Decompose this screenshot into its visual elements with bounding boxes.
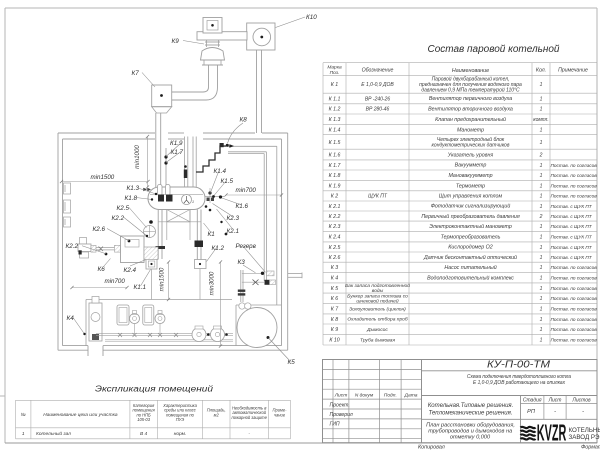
svg-text:К2.3: К2.3 <box>227 215 240 222</box>
svg-text:м2: м2 <box>214 413 220 418</box>
svg-text:К1.7: К1.7 <box>171 149 184 156</box>
svg-text:Постав. по согласов: Постав. по согласов <box>551 307 598 312</box>
svg-text:отметку 0,000: отметку 0,000 <box>450 434 491 440</box>
svg-text:min1000: min1000 <box>134 145 141 169</box>
svg-text:Постав. по согласов: Постав. по согласов <box>551 194 598 199</box>
svg-text:1: 1 <box>192 199 194 204</box>
svg-text:N докум: N докум <box>355 392 374 398</box>
svg-text:К1.1: К1.1 <box>134 284 146 291</box>
svg-text:К6: К6 <box>98 266 106 273</box>
svg-text:Формат А3: Формат А3 <box>581 444 600 450</box>
svg-text:План расстановки оборудования,: План расстановки оборудования, <box>426 422 515 428</box>
svg-text:ВР 280-46: ВР 280-46 <box>366 107 390 113</box>
svg-text:1: 1 <box>540 275 543 281</box>
svg-text:К 1.2: К 1.2 <box>329 107 341 113</box>
svg-text:Фотодатчик сигнализирующий: Фотодатчик сигнализирующий <box>431 203 511 210</box>
svg-text:Проверил: Проверил <box>330 412 353 418</box>
svg-text:Термометр: Термометр <box>456 183 485 189</box>
svg-text:Подп.: Подп. <box>384 392 397 398</box>
svg-text:К1.5: К1.5 <box>221 178 234 185</box>
svg-text:Охладитель отбора проб: Охладитель отбора проб <box>347 317 408 323</box>
svg-text:пожарной защите: пожарной защите <box>232 415 268 420</box>
svg-text:К 1.1: К 1.1 <box>329 96 341 102</box>
svg-text:К 1.6: К 1.6 <box>329 152 341 158</box>
svg-text:К 1.5: К 1.5 <box>329 140 341 146</box>
svg-text:Термопреобразователь: Термопреобразователь <box>441 235 501 241</box>
svg-text:К 1.7: К 1.7 <box>329 163 342 169</box>
svg-text:1: 1 <box>540 82 543 88</box>
svg-text:1: 1 <box>540 338 543 344</box>
svg-text:Котельная.Типовые решения.: Котельная.Типовые решения. <box>428 403 514 409</box>
svg-text:Котельный зал: Котельный зал <box>36 430 71 437</box>
svg-text:min3000: min3000 <box>209 271 216 295</box>
svg-text:К3: К3 <box>238 259 246 266</box>
svg-text:К 2: К 2 <box>331 194 338 200</box>
svg-text:Мановакуумметр: Мановакуумметр <box>448 173 492 179</box>
svg-text:1: 1 <box>540 140 543 146</box>
svg-text:№: № <box>21 412 26 417</box>
svg-text:2: 2 <box>539 214 543 220</box>
svg-text:Постав. с ЩУК ПТ: Постав. с ЩУК ПТ <box>551 224 593 229</box>
svg-text:Постав. с ЩУК ПТ: Постав. с ЩУК ПТ <box>551 245 593 250</box>
svg-text:-: - <box>582 409 584 415</box>
svg-text:Датчик бесконтактный оптически: Датчик бесконтактный оптический <box>423 254 517 261</box>
svg-text:К 2.4: К 2.4 <box>329 235 341 241</box>
svg-text:К2.2: К2.2 <box>66 243 79 250</box>
svg-text:Вакуумметр: Вакуумметр <box>455 163 487 169</box>
svg-text:К 1.3: К 1.3 <box>329 117 341 123</box>
svg-text:Е 1,0-0,9 ДОВ работающего на о: Е 1,0-0,9 ДОВ работающего на опилках <box>473 380 565 386</box>
svg-text:Проект.: Проект. <box>330 402 350 408</box>
svg-text:В 4: В 4 <box>140 431 148 437</box>
svg-text:1: 1 <box>540 317 543 323</box>
svg-text:1: 1 <box>22 431 25 437</box>
svg-text:К2.2: К2.2 <box>112 215 125 222</box>
svg-text:ЗАВОД РЭП: ЗАВОД РЭП <box>569 434 600 441</box>
svg-text:Манометр: Манометр <box>457 127 484 133</box>
svg-text:К5: К5 <box>288 359 296 366</box>
svg-text:ПУЭ: ПУЭ <box>176 417 185 422</box>
svg-text:КОТЕЛЬНЫЙ: КОТЕЛЬНЫЙ <box>569 426 600 434</box>
svg-text:К1.3: К1.3 <box>127 185 140 192</box>
svg-text:К7: К7 <box>132 70 140 77</box>
svg-text:min1500: min1500 <box>159 267 166 291</box>
svg-text:шнековой подачей: шнековой подачей <box>356 297 399 304</box>
svg-text:Обозначение: Обозначение <box>362 68 394 74</box>
svg-text:К1: К1 <box>208 231 215 238</box>
svg-text:К 3: К 3 <box>331 265 338 271</box>
svg-text:1: 1 <box>540 327 543 333</box>
svg-text:К 9: К 9 <box>331 327 338 333</box>
svg-text:КУ-П-00-ТМ: КУ-П-00-ТМ <box>487 359 550 371</box>
svg-text:Наименование цеха или участка: Наименование цеха или участка <box>43 412 118 418</box>
svg-text:К9: К9 <box>172 38 180 45</box>
svg-text:1: 1 <box>540 255 543 261</box>
svg-text:Дата: Дата <box>404 392 418 398</box>
svg-text:1: 1 <box>540 173 543 179</box>
svg-text:Щит управления котлом: Щит управления котлом <box>439 194 503 200</box>
svg-text:Постав. с ЩУК ПТ: Постав. с ЩУК ПТ <box>551 235 593 240</box>
svg-text:1: 1 <box>540 245 543 251</box>
svg-text:Состав паровой котельной: Состав паровой котельной <box>428 44 561 55</box>
svg-text:Постав. по согласов: Постав. по согласов <box>551 184 598 189</box>
svg-text:К8: К8 <box>240 117 248 124</box>
svg-text:105-03: 105-03 <box>137 417 150 422</box>
svg-text:РП: РП <box>527 409 536 415</box>
svg-text:Кол.: Кол. <box>536 68 546 74</box>
svg-text:1: 1 <box>540 184 543 190</box>
svg-text:К10: К10 <box>306 14 317 21</box>
svg-text:Золоуловитель (циклон): Золоуловитель (циклон) <box>349 306 406 312</box>
svg-text:Указатель уровня: Указатель уровня <box>448 152 494 158</box>
svg-text:К1.9: К1.9 <box>170 140 183 147</box>
svg-text:К1.6: К1.6 <box>236 203 249 210</box>
svg-text:Наименование: Наименование <box>452 68 489 74</box>
svg-text:чание: чание <box>274 413 286 418</box>
svg-text:К1.2: К1.2 <box>212 245 225 252</box>
svg-text:1: 1 <box>540 296 543 302</box>
svg-text:норм.: норм. <box>174 432 187 437</box>
svg-text:Постав. с ЩУК ПТ: Постав. с ЩУК ПТ <box>551 255 593 260</box>
svg-text:К 4: К 4 <box>331 275 338 281</box>
svg-text:Вентилятор вторичного воздуха: Вентилятор вторичного воздуха <box>428 107 513 113</box>
svg-text:Тепломеханические решения.: Тепломеханические решения. <box>429 411 513 417</box>
svg-text:Первичный преобразователь давл: Первичный преобразователь давления <box>421 213 520 220</box>
svg-text:1: 1 <box>540 265 543 271</box>
svg-text:Насос питательный: Насос питательный <box>444 264 496 271</box>
svg-text:Постав. по согласов: Постав. по согласов <box>551 296 598 301</box>
svg-text:Постав. с ЩУК ПТ: Постав. с ЩУК ПТ <box>551 204 593 209</box>
svg-text:Труба дымовая: Труба дымовая <box>360 337 395 343</box>
svg-text:ВР -240-26: ВР -240-26 <box>365 96 391 102</box>
svg-text:Постав. по согласов: Постав. по согласов <box>551 265 598 270</box>
svg-text:К 2.3: К 2.3 <box>329 224 341 230</box>
svg-text:1: 1 <box>540 127 543 133</box>
svg-text:Кислородомер О2: Кислородомер О2 <box>448 245 493 251</box>
svg-text:Дымосос: Дымосос <box>366 327 388 333</box>
svg-text:давлением 0,9 МПа температурой: давлением 0,9 МПа температурой 110°С <box>421 87 520 94</box>
svg-text:Постав. по согласов: Постав. по согласов <box>551 317 598 322</box>
svg-text:К 7: К 7 <box>331 307 339 313</box>
svg-text:Е 1,0-0,9 ДОВ: Е 1,0-0,9 ДОВ <box>361 82 394 88</box>
svg-text:Постав. по согласов: Постав. по согласов <box>551 275 598 280</box>
svg-text:Постав. по согласов: Постав. по согласов <box>551 338 598 343</box>
svg-text:Постав. по согласов: Постав. по согласов <box>551 286 598 291</box>
svg-text:min700: min700 <box>105 278 126 285</box>
svg-text:К 6: К 6 <box>331 296 338 302</box>
svg-text:компл.: компл. <box>533 117 549 123</box>
svg-text:Поз.: Поз. <box>330 70 340 76</box>
svg-text:1: 1 <box>540 307 543 313</box>
svg-text:1: 1 <box>540 96 543 102</box>
svg-text:К 2.1: К 2.1 <box>329 204 341 210</box>
svg-text:К 8: К 8 <box>331 317 338 323</box>
svg-text:Постав. с ЩУК ПТ: Постав. с ЩУК ПТ <box>551 214 593 219</box>
svg-text:ЩУК ПТ: ЩУК ПТ <box>368 194 388 200</box>
svg-text:Копировал: Копировал <box>418 444 445 450</box>
svg-text:Экспликация помещений: Экспликация помещений <box>95 383 213 393</box>
svg-text:К2.4: К2.4 <box>124 267 137 274</box>
svg-text:Лист: Лист <box>334 392 348 398</box>
svg-text:К4: К4 <box>67 315 75 322</box>
svg-text:KVZR: KVZR <box>537 420 567 446</box>
svg-text:Примечание: Примечание <box>558 68 588 74</box>
svg-text:1: 1 <box>540 204 543 210</box>
svg-text:Постав. по согласов: Постав. по согласов <box>551 327 598 332</box>
svg-text:К 2.5: К 2.5 <box>329 245 341 251</box>
svg-text:К 1.8: К 1.8 <box>329 173 341 179</box>
svg-text:К 10: К 10 <box>329 338 339 344</box>
svg-text:Стадия: Стадия <box>523 398 542 404</box>
svg-text:Листов: Листов <box>571 398 591 404</box>
svg-text:Марка: Марка <box>327 65 342 71</box>
svg-text:Клапан предохранительный: Клапан предохранительный <box>435 116 506 123</box>
svg-text:К2.5: К2.5 <box>117 205 130 212</box>
svg-text:Резерв: Резерв <box>236 243 257 250</box>
svg-text:К 2.6: К 2.6 <box>329 255 341 261</box>
svg-text:2: 2 <box>539 152 543 158</box>
svg-text:Постав. по согласов: Постав. по согласов <box>551 173 598 178</box>
svg-text:min700: min700 <box>236 187 257 194</box>
svg-text:Водоподготовительный комплекс: Водоподготовительный комплекс <box>427 274 514 281</box>
svg-text:К 1.4: К 1.4 <box>329 127 341 133</box>
svg-text:К 1.9: К 1.9 <box>329 184 341 190</box>
svg-text:-: - <box>248 432 250 437</box>
svg-text:К2.6: К2.6 <box>93 226 106 233</box>
svg-text:Электроконтактный манометр: Электроконтактный манометр <box>429 223 512 230</box>
svg-text:Постав. по согласов: Постав. по согласов <box>551 163 598 168</box>
svg-text:1: 1 <box>540 286 543 292</box>
svg-text:К 1: К 1 <box>331 82 338 88</box>
svg-text:воды: воды <box>372 288 384 294</box>
svg-text:1: 1 <box>540 235 543 241</box>
svg-text:-: - <box>554 409 556 415</box>
svg-text:К 5: К 5 <box>331 286 338 292</box>
svg-text:К1.8: К1.8 <box>125 195 138 202</box>
svg-text:К1.4: К1.4 <box>214 168 227 175</box>
svg-text:min1500: min1500 <box>91 174 115 181</box>
svg-text:1: 1 <box>540 107 543 113</box>
svg-text:1: 1 <box>540 224 543 230</box>
svg-text:Вентилятор первичного воздуха: Вентилятор первичного воздуха <box>429 96 512 102</box>
svg-text:кондуктометрических датчиков: кондуктометрических датчиков <box>432 142 510 148</box>
svg-text:1: 1 <box>540 163 543 169</box>
svg-text:ГИП: ГИП <box>330 421 340 427</box>
svg-text:К 2.2: К 2.2 <box>329 214 341 220</box>
svg-text:Лист: Лист <box>548 398 562 404</box>
svg-text:1: 1 <box>540 194 543 200</box>
